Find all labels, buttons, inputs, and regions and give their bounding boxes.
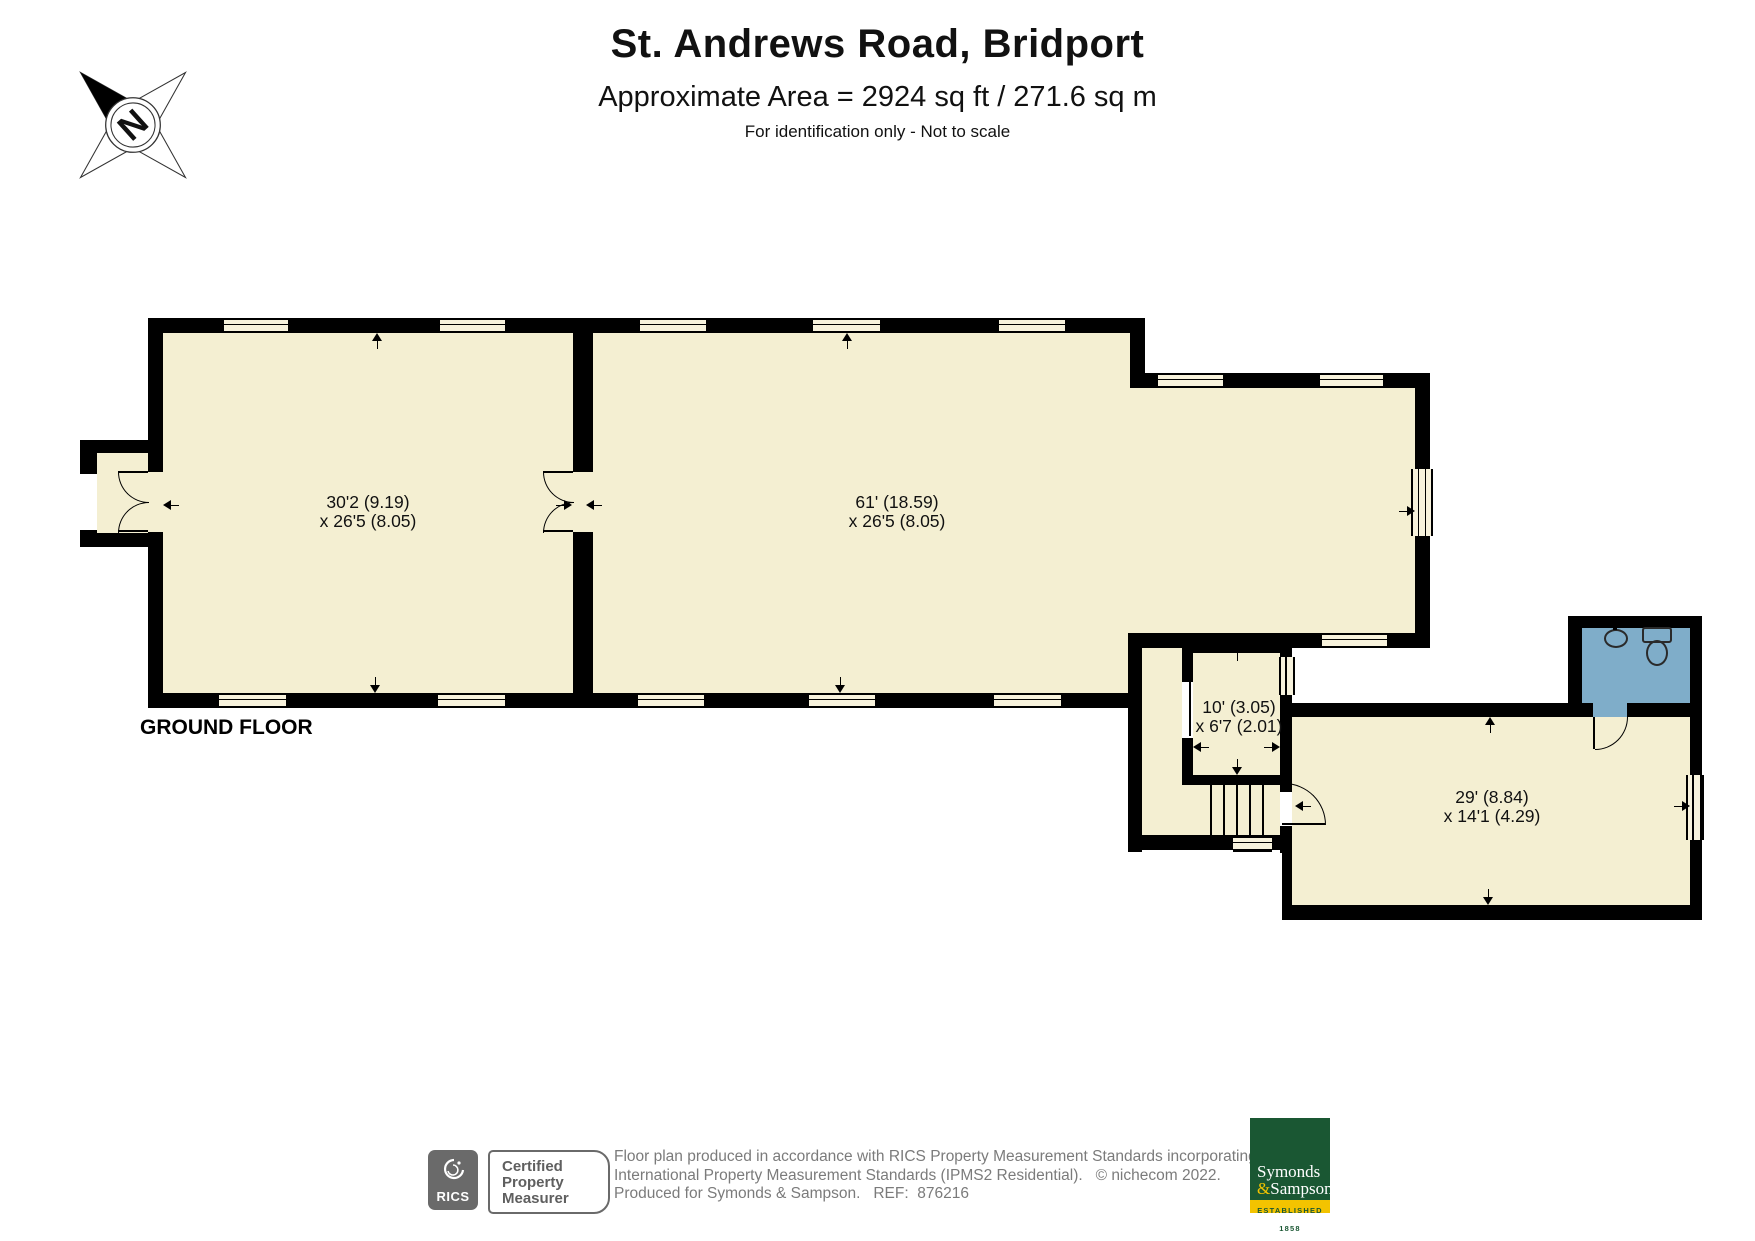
bathroom-fill	[1582, 628, 1690, 705]
footer-line: Produced for Symonds & Sampson. REF: 876…	[614, 1185, 1257, 1204]
stair-tread	[1223, 785, 1225, 835]
window	[994, 693, 1061, 708]
dim-arrow-down	[1483, 897, 1493, 905]
footer-disclaimer: Floor plan produced in accordance with R…	[614, 1148, 1257, 1204]
dim-line-2: x 14'1 (4.29)	[1444, 807, 1541, 826]
window	[1279, 657, 1295, 695]
stair-tread	[1262, 785, 1264, 835]
stair-tread	[1236, 785, 1238, 835]
wall	[1282, 905, 1702, 920]
room-main-fill-b	[1130, 388, 1415, 633]
dim-line-1: 10' (3.05)	[1196, 698, 1283, 717]
dim-line-1: 30'2 (9.19)	[320, 493, 417, 512]
room-dimensions: 61' (18.59) x 26'5 (8.05)	[849, 493, 946, 531]
agency-established-bar: ESTABLISHED 1858	[1250, 1200, 1330, 1213]
certified-property-measurer-badge: Certified Property Measurer	[488, 1150, 610, 1214]
stairs-fill	[1182, 785, 1280, 835]
window	[813, 318, 880, 333]
stair-tread	[1249, 785, 1251, 835]
dim-line-2: x 26'5 (8.05)	[849, 512, 946, 531]
dim-arrow-down	[1232, 767, 1242, 775]
header: St. Andrews Road, Bridport Approximate A…	[0, 0, 1755, 142]
cpm-line: Property	[502, 1175, 608, 1191]
wall	[1182, 653, 1193, 682]
symonds-sampson-logo: Symonds &Sampson ESTABLISHED 1858	[1250, 1118, 1330, 1213]
corridor-fill	[1142, 648, 1182, 835]
wall	[1292, 703, 1593, 717]
wall	[80, 440, 97, 474]
window	[640, 318, 706, 333]
agency-ampersand: &	[1257, 1179, 1270, 1198]
dim-arrow-left	[586, 500, 594, 510]
window	[219, 693, 286, 708]
window	[440, 318, 505, 333]
wall	[1182, 775, 1292, 785]
wall	[1128, 633, 1142, 852]
sink-icon	[1604, 629, 1628, 648]
dim-arrow-up	[1232, 645, 1242, 653]
rics-badge: RICS	[428, 1150, 478, 1210]
dim-arrow-right	[1407, 506, 1415, 516]
disclaimer-note: For identification only - Not to scale	[0, 122, 1755, 142]
window	[224, 318, 288, 333]
dim-arrow-up	[372, 333, 382, 341]
dim-line-2: x 26'5 (8.05)	[320, 512, 417, 531]
wall	[148, 532, 163, 708]
dim-arrow-up	[842, 333, 852, 341]
dim-arrow-down	[835, 685, 845, 693]
rics-label: RICS	[428, 1189, 478, 1204]
dim-line-1: 29' (8.84)	[1444, 788, 1541, 807]
window	[1158, 373, 1223, 388]
door-jamb	[80, 531, 97, 533]
dim-arrow-left	[1295, 801, 1303, 811]
door-leaf	[1189, 682, 1191, 736]
wall	[1568, 616, 1702, 628]
dim-arrow-left	[163, 500, 171, 510]
agency-name: Sampson	[1270, 1179, 1332, 1198]
wall	[1182, 738, 1193, 775]
room-dimensions: 10' (3.05) x 6'7 (2.01)	[1196, 698, 1283, 736]
cpm-line: Measurer	[502, 1191, 608, 1207]
wall	[1690, 616, 1702, 920]
rics-lion-icon	[436, 1156, 470, 1186]
wall	[1130, 318, 1145, 388]
area-subtitle: Approximate Area = 2924 sq ft / 271.6 sq…	[0, 81, 1755, 114]
floor-name-label: GROUND FLOOR	[140, 716, 313, 740]
dim-arrow-up	[1485, 717, 1495, 725]
bathroom-door-notch	[1593, 703, 1627, 717]
dim-arrow-right	[1272, 742, 1280, 752]
sink-tap	[1613, 627, 1617, 630]
door-jamb	[80, 472, 97, 474]
floorplan-page: St. Andrews Road, Bridport Approximate A…	[0, 0, 1755, 1241]
window	[1322, 633, 1387, 648]
wall	[573, 532, 593, 708]
cpm-line: Certified	[502, 1159, 608, 1175]
window	[1411, 469, 1433, 536]
wall	[573, 318, 593, 472]
compass-rose-icon: N	[70, 62, 196, 188]
dim-arrow-down	[370, 685, 380, 693]
room-dimensions: 30'2 (9.19) x 26'5 (8.05)	[320, 493, 417, 531]
window	[999, 318, 1065, 333]
agency-name-line2: &Sampson	[1257, 1179, 1333, 1199]
room-dimensions: 29' (8.84) x 14'1 (4.29)	[1444, 788, 1541, 826]
dim-arrow-right	[564, 500, 572, 510]
dim-line-1: 61' (18.59)	[849, 493, 946, 512]
footer-line: Floor plan produced in accordance with R…	[614, 1148, 1257, 1167]
wall	[80, 530, 97, 547]
page-title: St. Andrews Road, Bridport	[0, 22, 1755, 67]
wall	[148, 318, 163, 472]
wall	[1568, 616, 1582, 703]
agency-logo-square: Symonds &Sampson	[1250, 1118, 1330, 1200]
window	[1320, 373, 1383, 388]
toilet-bowl-icon	[1646, 640, 1668, 666]
footer-line: International Property Measurement Stand…	[614, 1167, 1257, 1186]
porch-passage-fill	[148, 472, 163, 532]
dim-line-2: x 6'7 (2.01)	[1196, 717, 1283, 736]
window	[1233, 836, 1272, 852]
established-text: ESTABLISHED 1858	[1257, 1206, 1323, 1233]
window	[638, 693, 704, 708]
window	[809, 693, 875, 708]
window	[438, 693, 505, 708]
dim-arrow-right	[1682, 801, 1690, 811]
stair-tread	[1210, 785, 1212, 835]
dim-arrow-left	[1193, 742, 1201, 752]
